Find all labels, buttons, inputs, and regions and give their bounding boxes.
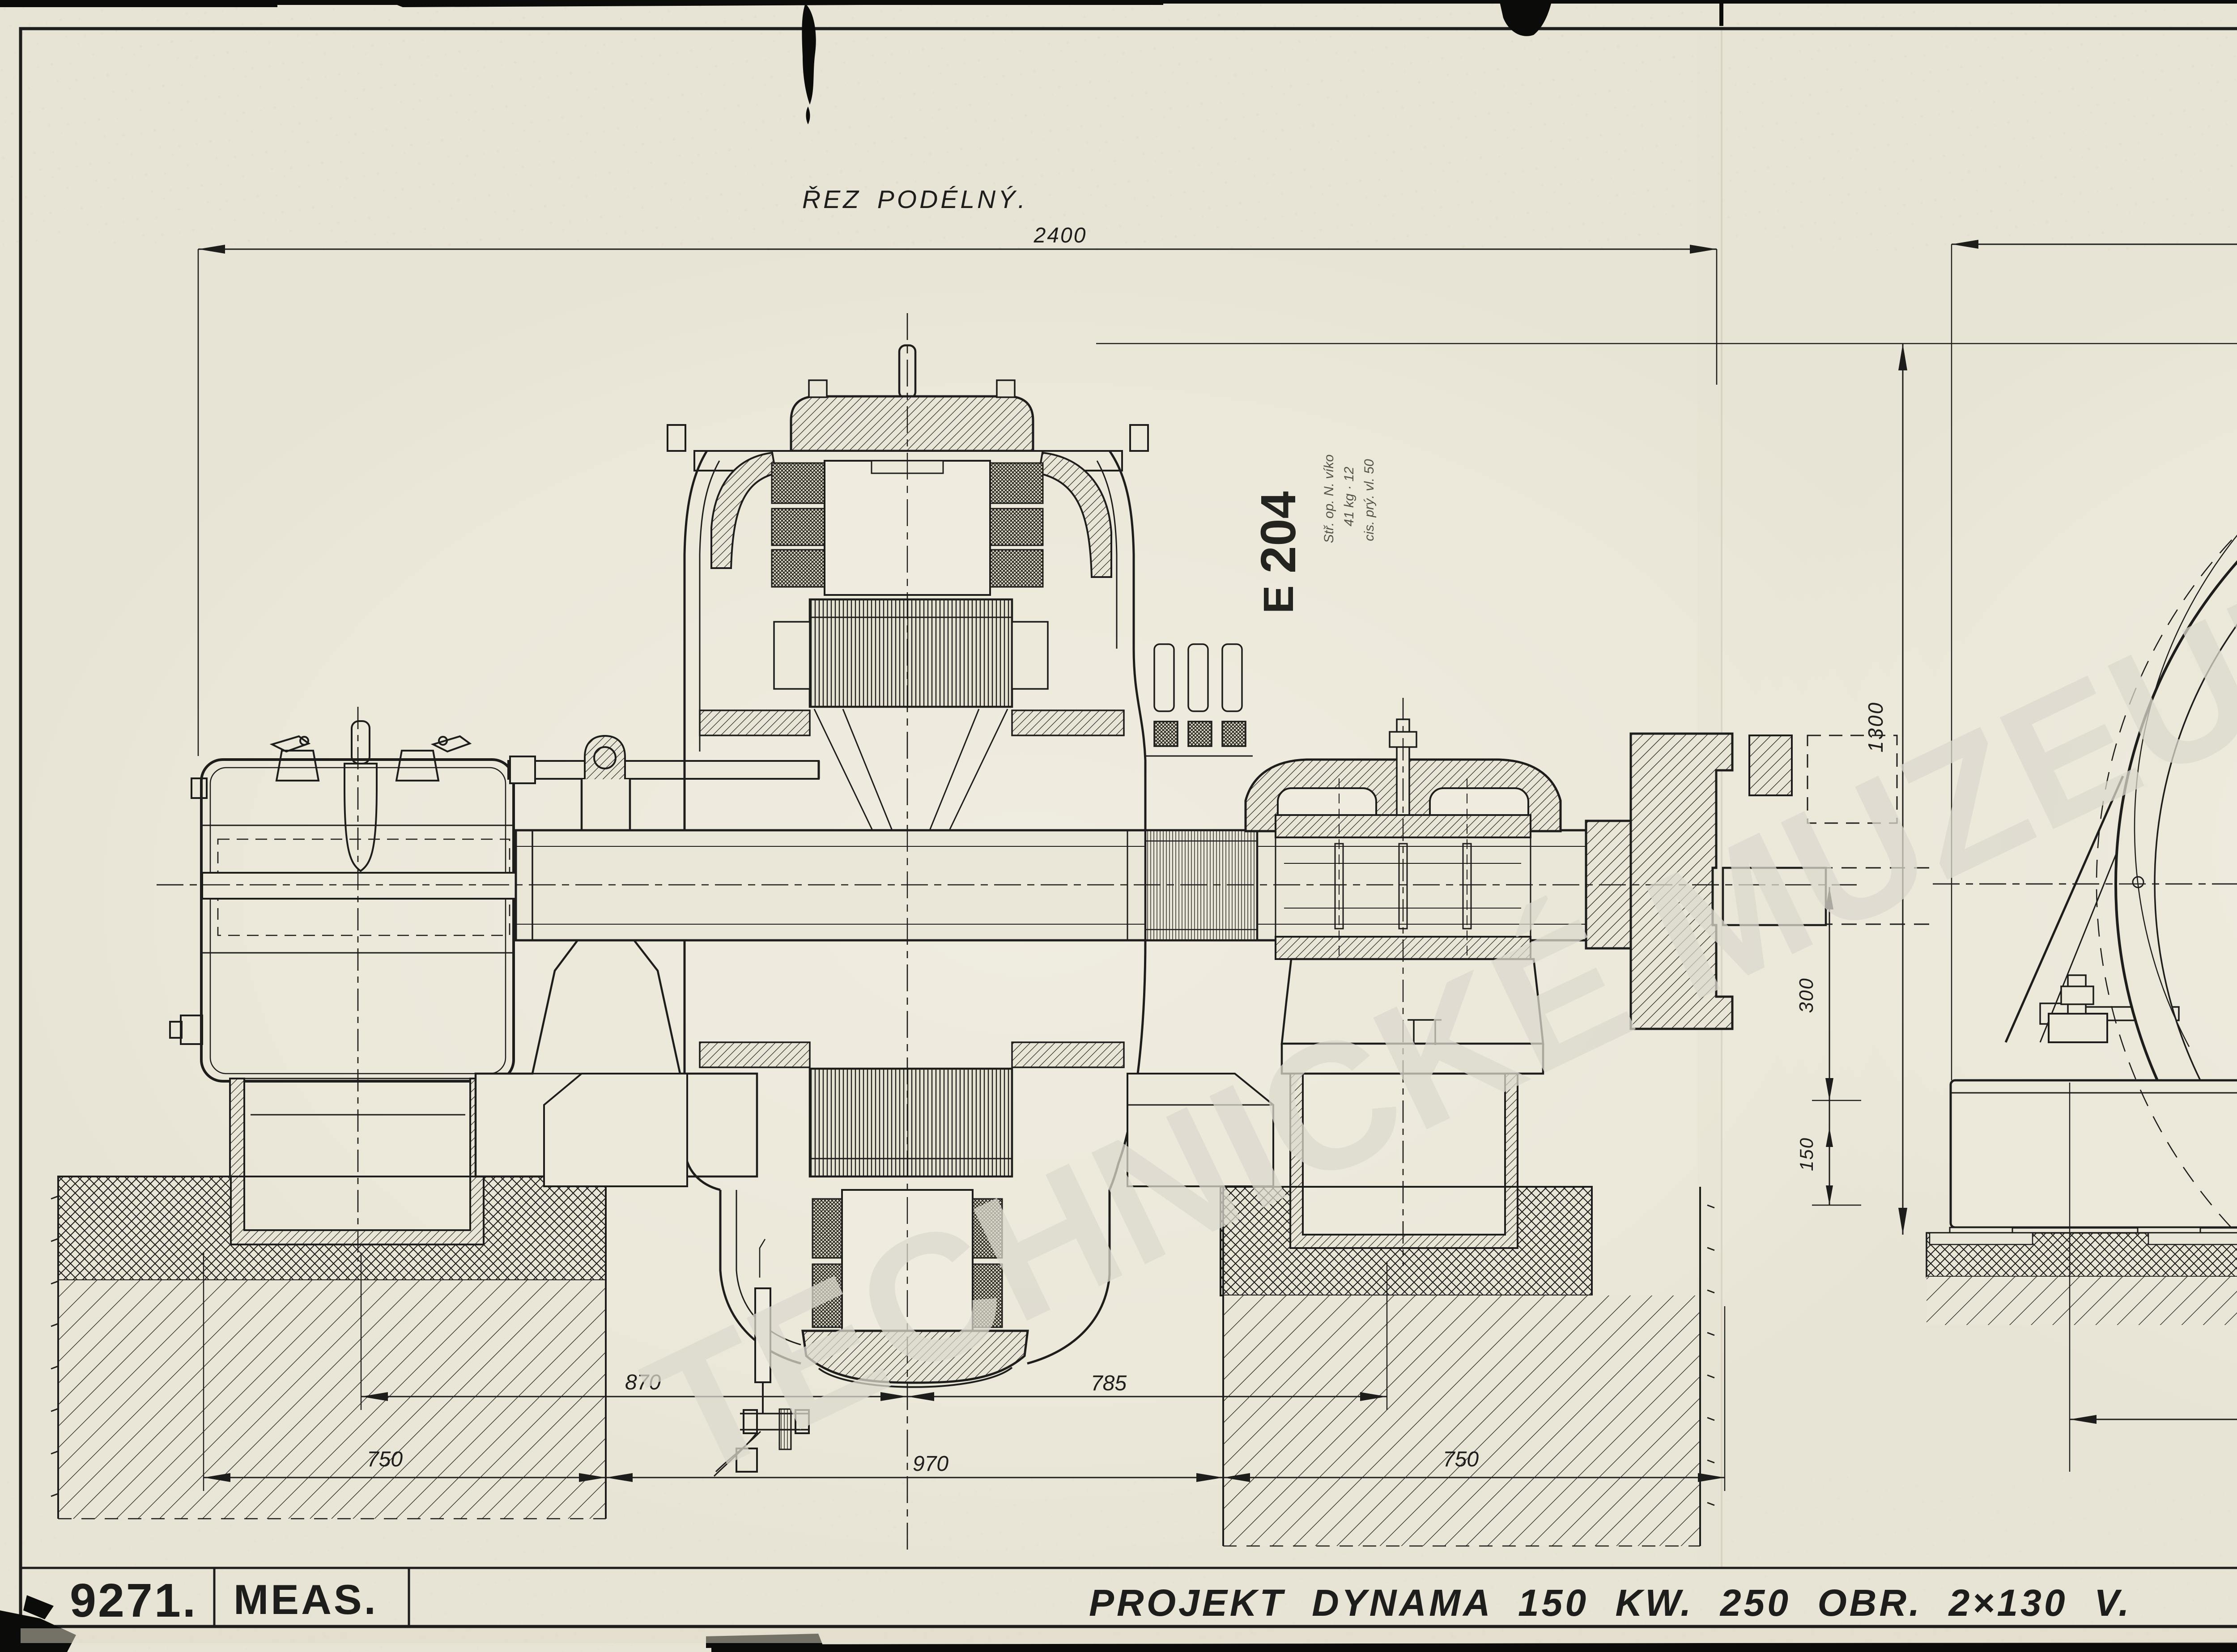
svg-text:2400: 2400 (1033, 224, 1087, 247)
svg-text:204: 204 (1251, 491, 1306, 573)
svg-text:41 kg · 12: 41 kg · 12 (1342, 467, 1357, 527)
svg-text:MEAS.: MEAS. (234, 1576, 378, 1623)
svg-text:750: 750 (1443, 1448, 1479, 1471)
svg-text:Stř. op. N. víko: Stř. op. N. víko (1322, 454, 1336, 543)
svg-text:150: 150 (1796, 1137, 1817, 1171)
svg-text:ŘEZ PODÉLNÝ.: ŘEZ PODÉLNÝ. (802, 185, 1028, 214)
svg-text:PROJEKT DYNAMA 150 KW. 250 OBR: PROJEKT DYNAMA 150 KW. 250 OBR. 2×130 V. (1089, 1582, 2132, 1624)
svg-text:785: 785 (1091, 1372, 1127, 1395)
svg-text:970: 970 (913, 1452, 948, 1476)
svg-text:750: 750 (367, 1448, 403, 1471)
svg-text:E: E (1255, 585, 1302, 613)
svg-text:cis. prý. vl. 50: cis. prý. vl. 50 (1362, 459, 1377, 541)
svg-text:9271.: 9271. (70, 1574, 197, 1627)
